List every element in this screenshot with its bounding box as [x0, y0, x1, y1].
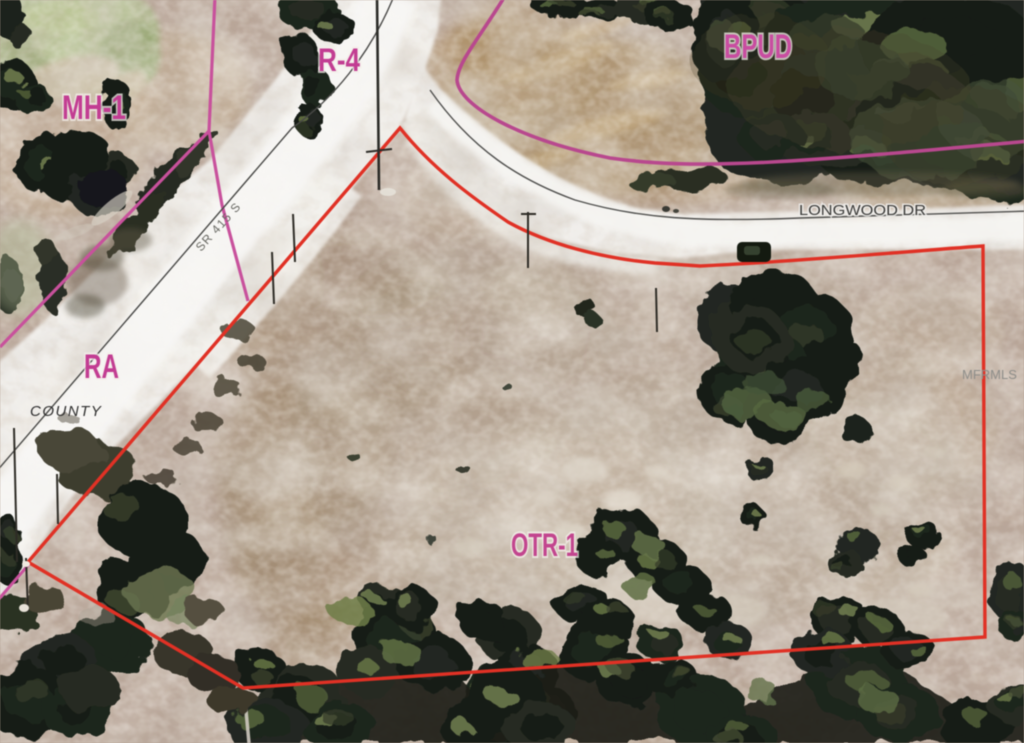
svg-text:RA: RA — [84, 348, 119, 386]
svg-text:MFRMLS: MFRMLS — [962, 367, 1017, 382]
svg-text:MH-1: MH-1 — [62, 89, 126, 127]
svg-text:COUNTY: COUNTY — [30, 403, 102, 420]
svg-text:LONGWOOD DR: LONGWOOD DR — [799, 202, 926, 219]
svg-text:R-4: R-4 — [318, 42, 360, 78]
svg-text:OTR-1: OTR-1 — [511, 527, 578, 563]
svg-text:BPUD: BPUD — [724, 28, 792, 66]
